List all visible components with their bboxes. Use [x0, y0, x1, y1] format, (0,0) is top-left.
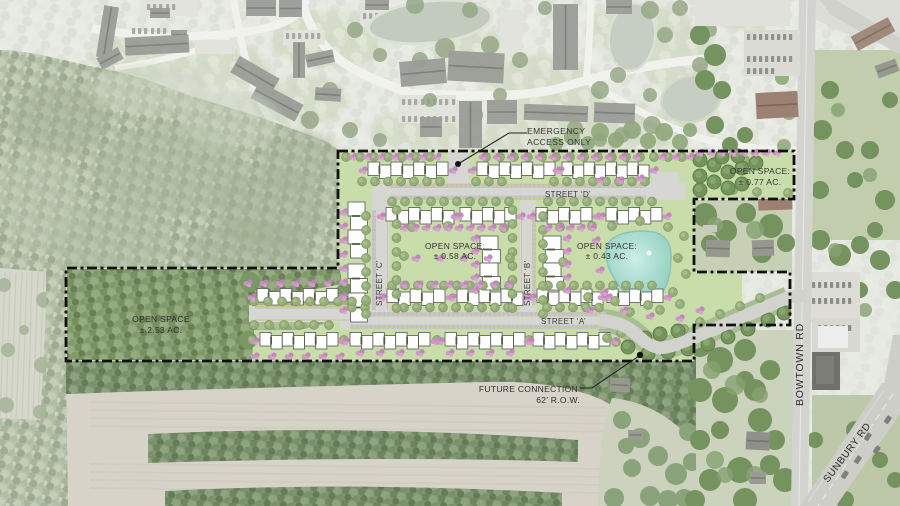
svg-text:ACCESS ONLY: ACCESS ONLY — [527, 137, 591, 147]
svg-text:OPEN SPACE:: OPEN SPACE: — [730, 166, 790, 176]
svg-text:STREET ‘D’: STREET ‘D’ — [545, 190, 591, 199]
svg-text:BOWTOWN RD: BOWTOWN RD — [794, 323, 806, 406]
svg-text:STREET ‘A’: STREET ‘A’ — [541, 317, 586, 326]
svg-text:± 0.77 AC.: ± 0.77 AC. — [739, 177, 782, 187]
svg-text:OPEN SPACE:: OPEN SPACE: — [577, 241, 637, 251]
svg-text:STREET ‘B’: STREET ‘B’ — [523, 260, 532, 306]
svg-text:62’ R.O.W.: 62’ R.O.W. — [536, 395, 580, 405]
svg-text:STREET ‘C’: STREET ‘C’ — [375, 260, 384, 306]
svg-text:± 0.43 AC.: ± 0.43 AC. — [586, 251, 629, 261]
svg-text:FUTURE CONNECTION: FUTURE CONNECTION — [479, 384, 578, 394]
svg-text:EMERGENCY: EMERGENCY — [527, 126, 585, 136]
svg-text:OPEN SPACE: OPEN SPACE — [132, 314, 190, 324]
svg-text:OPEN SPACE:: OPEN SPACE: — [425, 241, 485, 251]
svg-text:± 2.53 AC.: ± 2.53 AC. — [140, 325, 183, 335]
svg-text:± 0.58 AC.: ± 0.58 AC. — [434, 251, 477, 261]
